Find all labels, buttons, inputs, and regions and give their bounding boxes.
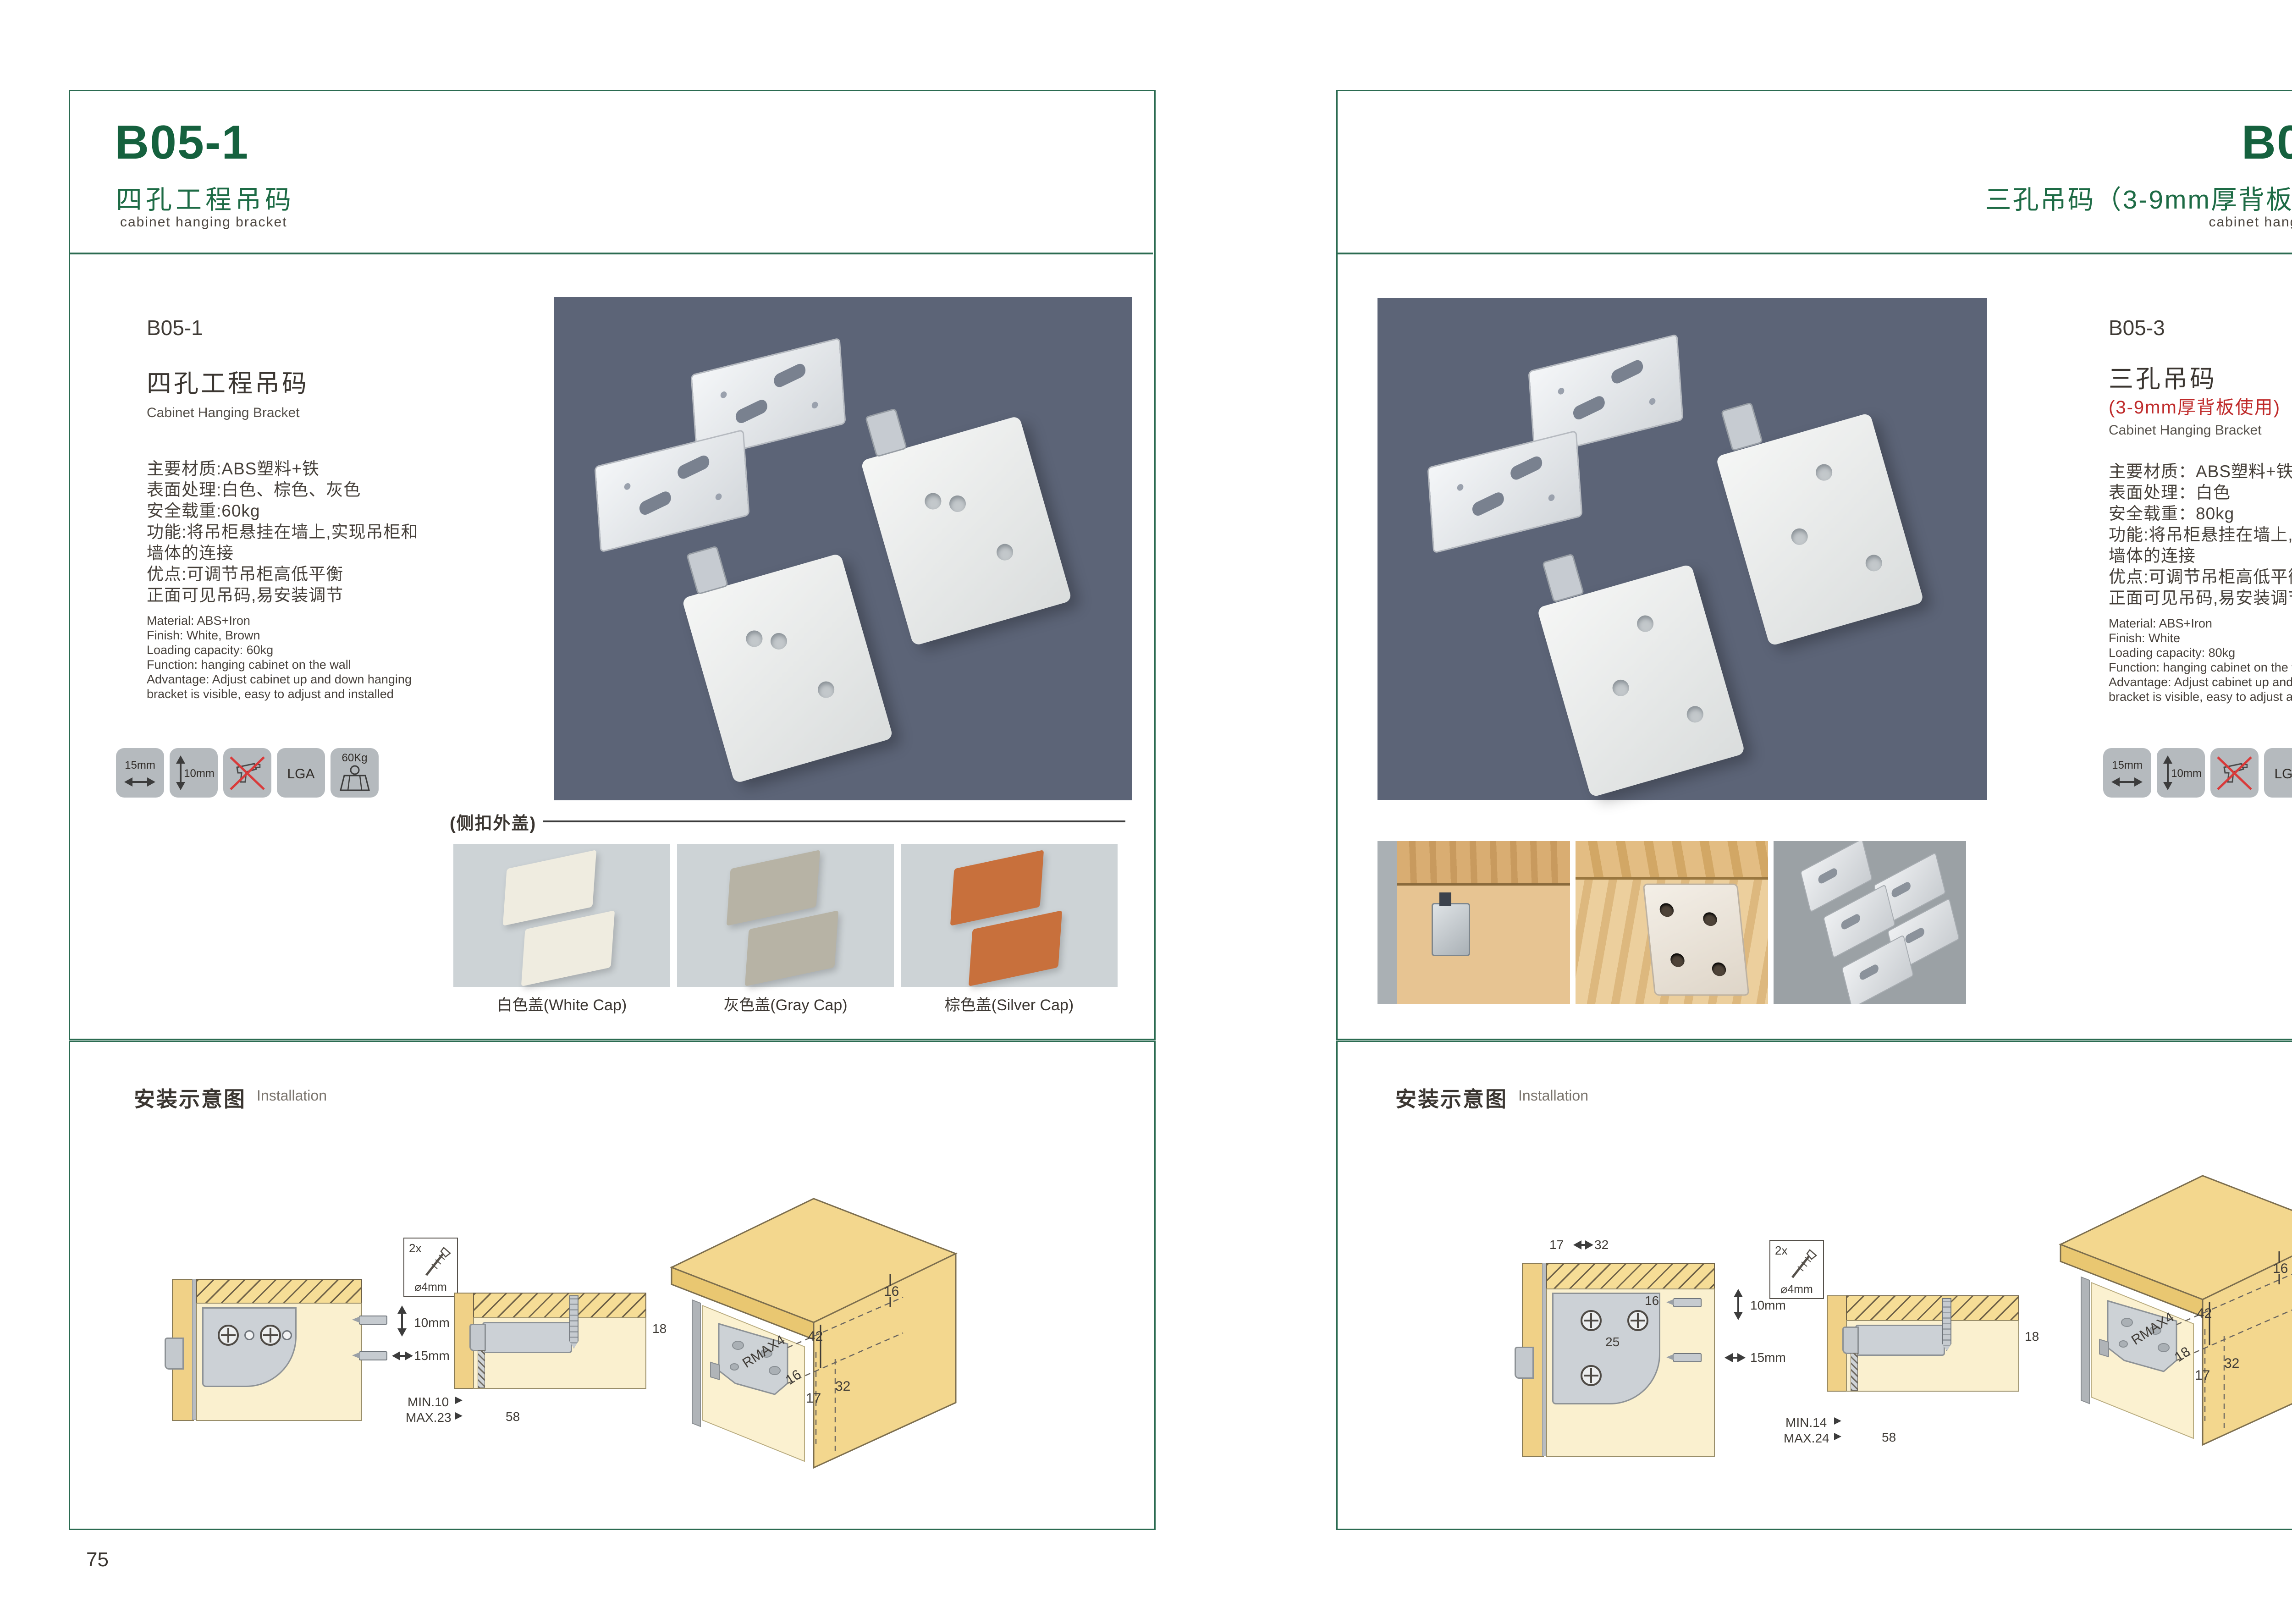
spec-line: Material: ABS+Iron xyxy=(147,613,412,628)
spec-line: 表面处理：白色 xyxy=(2109,482,2292,503)
installation-title-cn: 安装示意图 xyxy=(134,1083,246,1113)
page-subtitle-cn: 四孔工程吊码 xyxy=(116,179,295,216)
spec-list-cn: 主要材质：ABS塑料+铁 表面处理：白色 安全载重：80kg 功能:将吊柜悬挂在… xyxy=(2109,461,2292,609)
spec-line: bracket is visible, easy to adjust and i… xyxy=(2109,689,2292,704)
product-name-cn: 四孔工程吊码 xyxy=(147,363,309,399)
spec-line: 安全载重：80kg xyxy=(2109,503,2292,524)
dim-label: MIN.10 xyxy=(408,1395,449,1409)
spec-line: 安全载重:60kg xyxy=(147,501,419,522)
no-drill-icon xyxy=(2210,748,2259,798)
screw-spec-box: 2x ⌀4mm xyxy=(1769,1240,1824,1299)
installation-diagram-perspective: 16 42 RMAX4 16 17 32 xyxy=(665,1187,958,1471)
spec-line: Function: hanging cabinet on the wall xyxy=(147,657,412,672)
cap-label: 白色盖(White Cap) xyxy=(453,992,670,1015)
spec-line: 正面可见吊码,易安装调节 xyxy=(2109,588,2292,609)
spec-line: 功能:将吊柜悬挂在墙上,实现吊柜和 xyxy=(147,522,419,543)
icon-label: LGA xyxy=(2264,766,2292,782)
depth-section xyxy=(454,1293,646,1389)
installation-title-cn: 安装示意图 xyxy=(1395,1083,1508,1113)
page-subtitle-en: cabinet hanging bracket xyxy=(120,215,287,230)
dim-label: 16 xyxy=(2273,1261,2288,1276)
panel-height-icon: 10mm xyxy=(170,748,218,798)
metal-plate xyxy=(594,429,749,553)
lga-cert-icon: LGA xyxy=(277,748,325,798)
caps-section-label: (侧扣外盖) xyxy=(450,809,536,834)
spec-line: Finish: White xyxy=(2109,631,2292,645)
arrow-icon xyxy=(455,1397,463,1404)
catalog-spread: B05-1 四孔工程吊码 cabinet hanging bracket B05… xyxy=(0,0,2292,1624)
icon-label: 15mm xyxy=(2103,759,2151,772)
dim-label: 17 xyxy=(1549,1238,1564,1252)
cap-photo-brown xyxy=(901,844,1118,987)
page-number: 76 xyxy=(2193,1548,2292,1571)
depth-section xyxy=(1827,1295,2019,1392)
spec-line: bracket is visible, easy to adjust and i… xyxy=(147,687,412,701)
application-photo-bracket xyxy=(1576,841,1768,1004)
product-photo xyxy=(1377,298,1987,800)
horizontal-arrow-icon xyxy=(2115,781,2139,783)
spec-list-en: Material: ABS+Iron Finish: White, Brown … xyxy=(147,613,412,701)
screw-diameter: ⌀4mm xyxy=(1770,1283,1823,1296)
spec-line: 优点:可调节吊柜高低平衡 xyxy=(2109,567,2292,588)
spec-line: Finish: White, Brown xyxy=(147,628,412,643)
icon-label: 10mm xyxy=(2162,767,2210,780)
page-subtitle-cn: 三孔吊码（3-9mm厚背板使用） xyxy=(1505,179,2292,216)
dim-label: 16 xyxy=(884,1284,899,1299)
panel-width-icon: 15mm xyxy=(116,748,164,798)
header-divider xyxy=(1336,253,2292,254)
dim-label: 42 xyxy=(2197,1306,2212,1321)
dim-label: 17 xyxy=(2195,1368,2210,1383)
icon-label: 60Kg xyxy=(331,752,379,765)
page-subtitle-en: cabinet hanging bracket xyxy=(1505,215,2292,230)
arrow-icon xyxy=(455,1412,463,1420)
icon-label: 15mm xyxy=(116,759,164,772)
bracket-hook xyxy=(686,545,729,595)
spec-list-cn: 主要材质:ABS塑料+铁 表面处理:白色、棕色、灰色 安全载重:60kg 功能:… xyxy=(147,458,419,606)
dim-label: 58 xyxy=(1882,1430,1896,1445)
dim-label: MIN.14 xyxy=(1785,1415,1827,1430)
spec-line: 功能:将吊柜悬挂在墙上,实现吊柜和 xyxy=(2109,524,2292,545)
no-drill-icon xyxy=(223,748,271,798)
bracket-hook xyxy=(1721,402,1763,451)
product-name-cn: 三孔吊码 xyxy=(2109,358,2217,395)
horizontal-arrow-icon xyxy=(1728,1357,1742,1359)
dim-label: 42 xyxy=(808,1329,823,1344)
lga-cert-icon: LGA xyxy=(2264,748,2292,798)
arrow-icon xyxy=(1834,1417,1841,1425)
page-title: B05-3 xyxy=(1505,116,2292,170)
spec-line: 表面处理:白色、棕色、灰色 xyxy=(147,479,419,501)
installation-title-en: Installation xyxy=(1518,1087,1588,1104)
dim-label: 58 xyxy=(506,1409,520,1424)
spec-line: 主要材质：ABS塑料+铁 xyxy=(2109,461,2292,482)
screw-spec-box: 2x ⌀4mm xyxy=(403,1238,458,1297)
vertical-arrow-icon xyxy=(1737,1293,1739,1316)
dim-label: 25 xyxy=(1605,1335,1620,1349)
cap-photo-white xyxy=(453,844,670,987)
screw-diameter: ⌀4mm xyxy=(404,1280,457,1294)
spec-line: 正面可见吊码,易安装调节 xyxy=(147,585,419,606)
installation-title-en: Installation xyxy=(257,1087,327,1104)
bracket-hook xyxy=(865,408,908,457)
spec-line: Function: hanging cabinet on the wall xyxy=(2109,660,2292,675)
spec-line: 优点:可调节吊柜高低平衡 xyxy=(147,564,419,585)
icon-label: 10mm xyxy=(175,767,223,780)
arrow-icon xyxy=(1834,1433,1841,1440)
product-photo xyxy=(554,297,1132,800)
spec-line: Material: ABS+Iron xyxy=(2109,616,2292,631)
cap-label: 棕色盖(Silver Cap) xyxy=(901,992,1118,1015)
spec-line: 墙体的连接 xyxy=(2109,545,2292,567)
spec-line: Loading capacity: 80kg xyxy=(2109,645,2292,660)
spec-line: 主要材质:ABS塑料+铁 xyxy=(147,458,419,479)
product-code: B05-3 xyxy=(2109,315,2165,340)
icon-label: LGA xyxy=(277,766,325,782)
panel-height-icon: 10mm xyxy=(2157,748,2205,798)
installation-diagram-perspective: 16 42 RMAX4 18 17 32 xyxy=(2049,1164,2292,1448)
plastic-bracket xyxy=(1716,413,1924,646)
installation-diagram-depth: 2x ⌀4mm 18 MIN.10 MAX.23 58 xyxy=(401,1235,676,1428)
dim-label: MAX.23 xyxy=(406,1410,452,1425)
dim-label: 32 xyxy=(2224,1356,2239,1371)
dim-label: 18 xyxy=(2025,1329,2039,1344)
spec-line: Advantage: Adjust cabinet up and down ha… xyxy=(2109,675,2292,689)
dim-label: MAX.24 xyxy=(1784,1431,1829,1446)
spec-line: Advantage: Adjust cabinet up and down ha… xyxy=(147,672,412,687)
caps-section-line xyxy=(543,820,1125,822)
panel-width-icon: 15mm xyxy=(2103,748,2151,798)
load-weight-icon: 60Kg xyxy=(331,748,379,798)
dim-label: 17 xyxy=(806,1391,821,1406)
page-title: B05-1 xyxy=(115,116,249,170)
metal-plate xyxy=(1427,430,1582,554)
product-name-en: Cabinet Hanging Bracket xyxy=(2109,423,2262,438)
product-name-note: (3-9mm厚背板使用) xyxy=(2109,392,2281,419)
horizontal-arrow-icon xyxy=(128,781,152,783)
bracket-hook xyxy=(1542,553,1585,603)
cap-label: 灰色盖(Gray Cap) xyxy=(677,992,894,1015)
installation-diagram-depth: 2x ⌀4mm 18 MIN.14 MAX.24 58 xyxy=(1767,1238,2051,1453)
header-divider xyxy=(69,253,1153,254)
dim-label: 16 xyxy=(1645,1294,1659,1308)
application-photo-hook xyxy=(1377,841,1570,1004)
dim-label: 32 xyxy=(835,1379,850,1394)
spec-line: 墙体的连接 xyxy=(147,543,419,564)
product-code: B05-1 xyxy=(147,315,203,340)
plastic-bracket xyxy=(1537,564,1746,798)
page-number: 75 xyxy=(86,1548,109,1571)
spec-line: Loading capacity: 60kg xyxy=(147,643,412,657)
product-name-en: Cabinet Hanging Bracket xyxy=(147,405,300,421)
horizontal-arrow-icon xyxy=(1577,1244,1590,1246)
parts-photo xyxy=(1774,841,1966,1004)
spec-list-en: Material: ABS+Iron Finish: White Loading… xyxy=(2109,616,2292,704)
cap-photo-gray xyxy=(677,844,894,987)
